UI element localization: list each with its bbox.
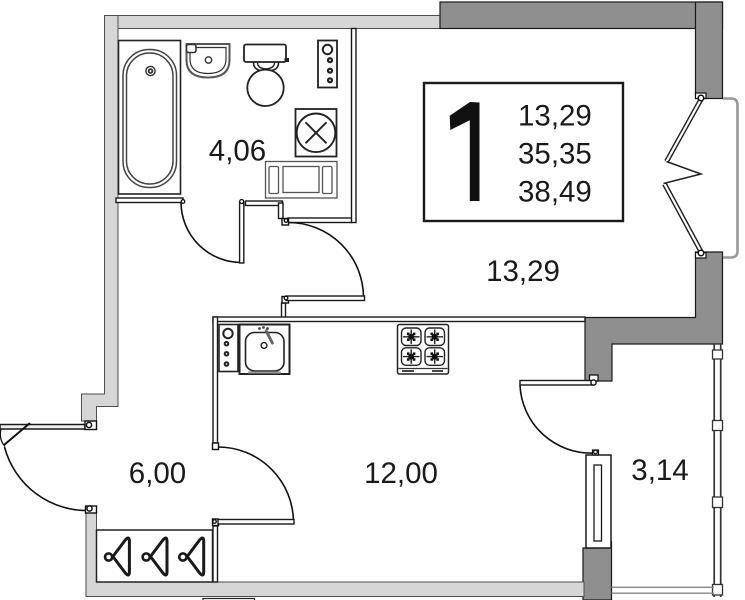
svg-text:13,29: 13,29 xyxy=(486,255,560,288)
svg-text:12,00: 12,00 xyxy=(364,457,438,490)
svg-text:38,49: 38,49 xyxy=(518,176,592,209)
svg-text:13,29: 13,29 xyxy=(518,100,592,133)
svg-text:3,14: 3,14 xyxy=(631,454,688,487)
svg-text:35,35: 35,35 xyxy=(518,138,592,171)
svg-text:4,06: 4,06 xyxy=(209,135,266,168)
svg-text:6,00: 6,00 xyxy=(129,457,186,490)
